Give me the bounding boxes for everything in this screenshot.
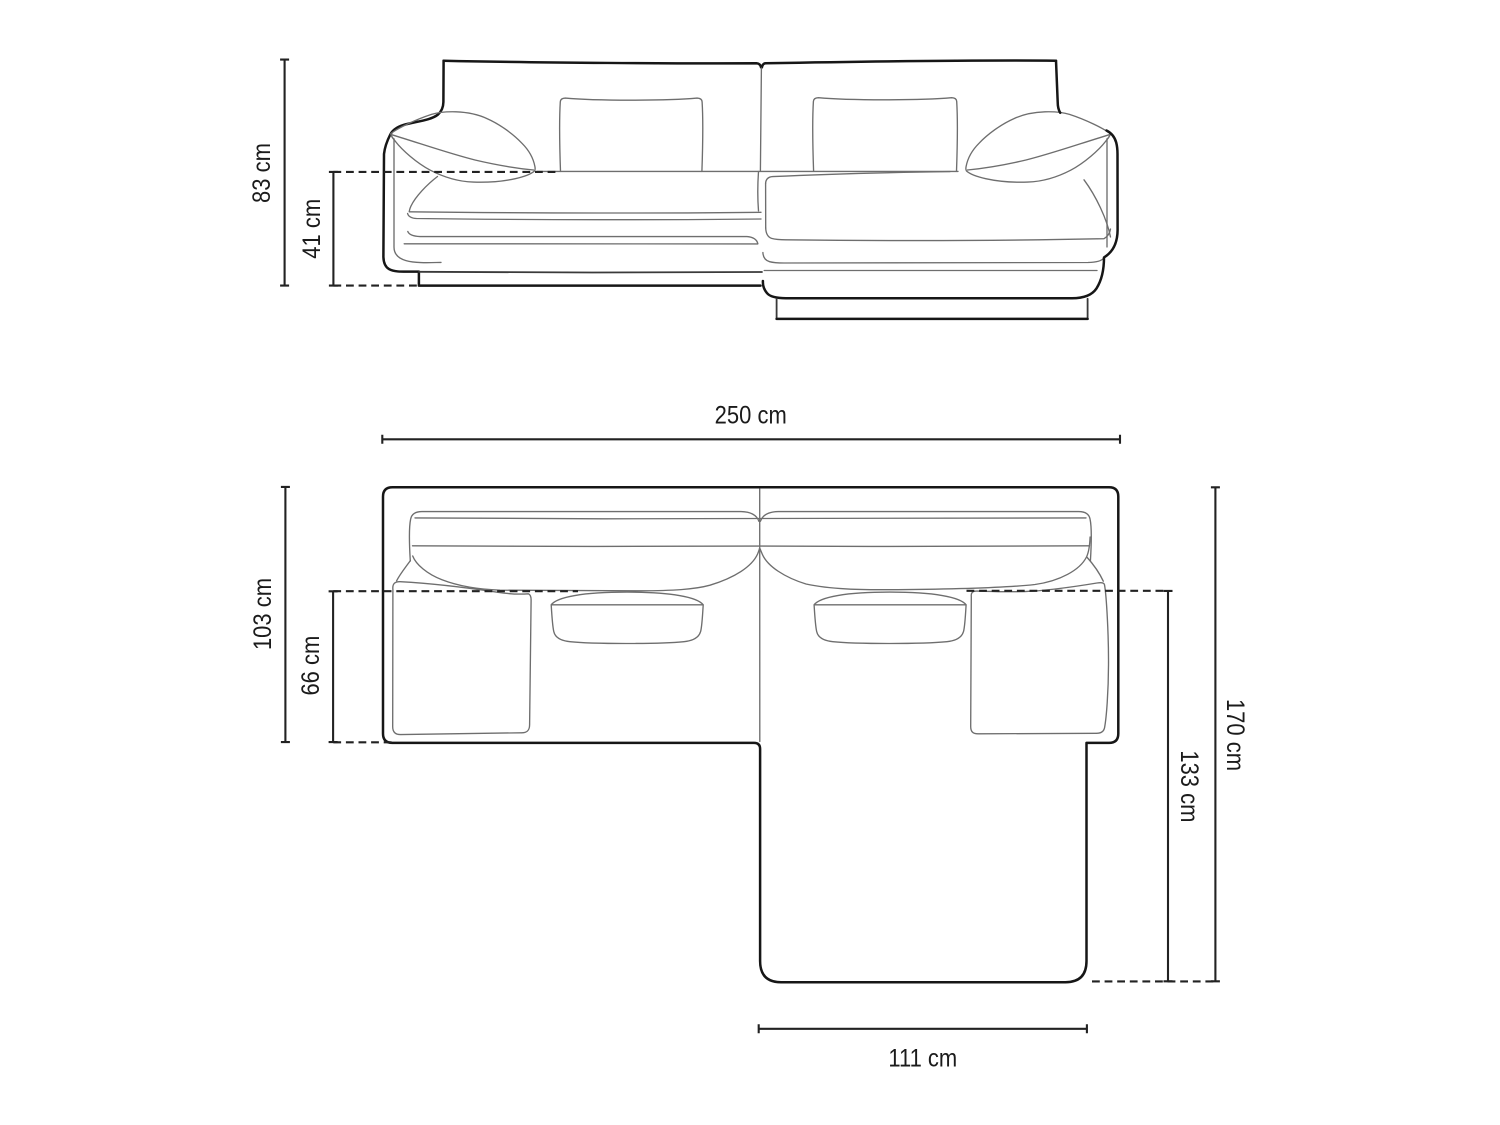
svg-text:111 cm: 111 cm bbox=[888, 1044, 957, 1072]
svg-text:103 cm: 103 cm bbox=[249, 578, 277, 650]
svg-text:250 cm: 250 cm bbox=[715, 401, 787, 429]
svg-text:170 cm: 170 cm bbox=[1222, 699, 1250, 771]
svg-text:66 cm: 66 cm bbox=[297, 636, 325, 696]
svg-text:133 cm: 133 cm bbox=[1176, 750, 1204, 822]
svg-text:41 cm: 41 cm bbox=[298, 199, 326, 259]
svg-text:83 cm: 83 cm bbox=[248, 143, 276, 203]
